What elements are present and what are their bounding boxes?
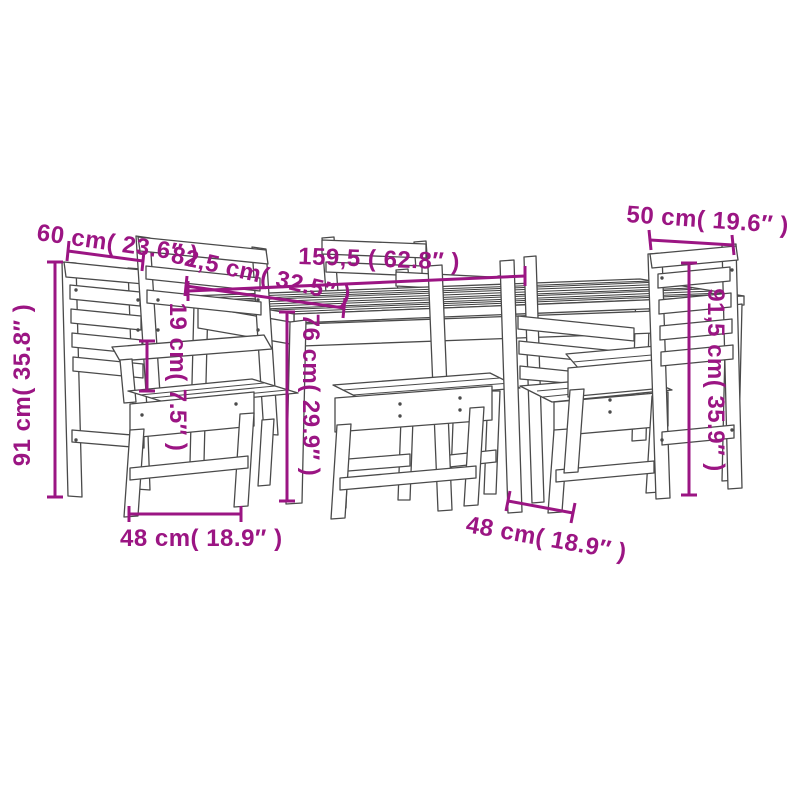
- line-art-canvas: 60 cm( 23.6″ ) 82,5 cm( 32.5″ ) 159,5 ( …: [0, 0, 800, 800]
- dimension-right-chair-back-width: 50 cm( 19.6″ ): [626, 201, 790, 255]
- dim-label-48cm-left: 48 cm( 18.9″ ): [120, 525, 283, 552]
- dim-label-91-5cm: 91,5 cm( 35.9″ ): [702, 288, 729, 472]
- dimension-diagram: 60 cm( 23.6″ ) 82,5 cm( 32.5″ ) 159,5 ( …: [0, 0, 800, 800]
- dimension-left-chair-height: 91 cm( 35.8″ ): [9, 262, 63, 497]
- dimension-right-chair-height: 91,5 cm( 35.9″ ): [681, 263, 729, 495]
- dim-label-76cm: 76 cm( 29.9″ ): [297, 314, 324, 477]
- dim-label-19cm: 19 cm( 7.5″ ): [164, 303, 191, 452]
- dimension-table-height: 76 cm( 29.9″ ): [279, 312, 324, 501]
- dimension-front-left-chair-width: 48 cm( 18.9″ ): [120, 506, 283, 552]
- dim-label-91cm: 91 cm( 35.8″ ): [9, 304, 36, 467]
- dimension-front-right-chair-depth: 48 cm( 18.9″ ): [464, 491, 629, 566]
- dim-label-159-5: 159,5 ( 62.8″ ): [298, 243, 461, 276]
- dim-label-48cm-right: 48 cm( 18.9″ ): [464, 511, 629, 566]
